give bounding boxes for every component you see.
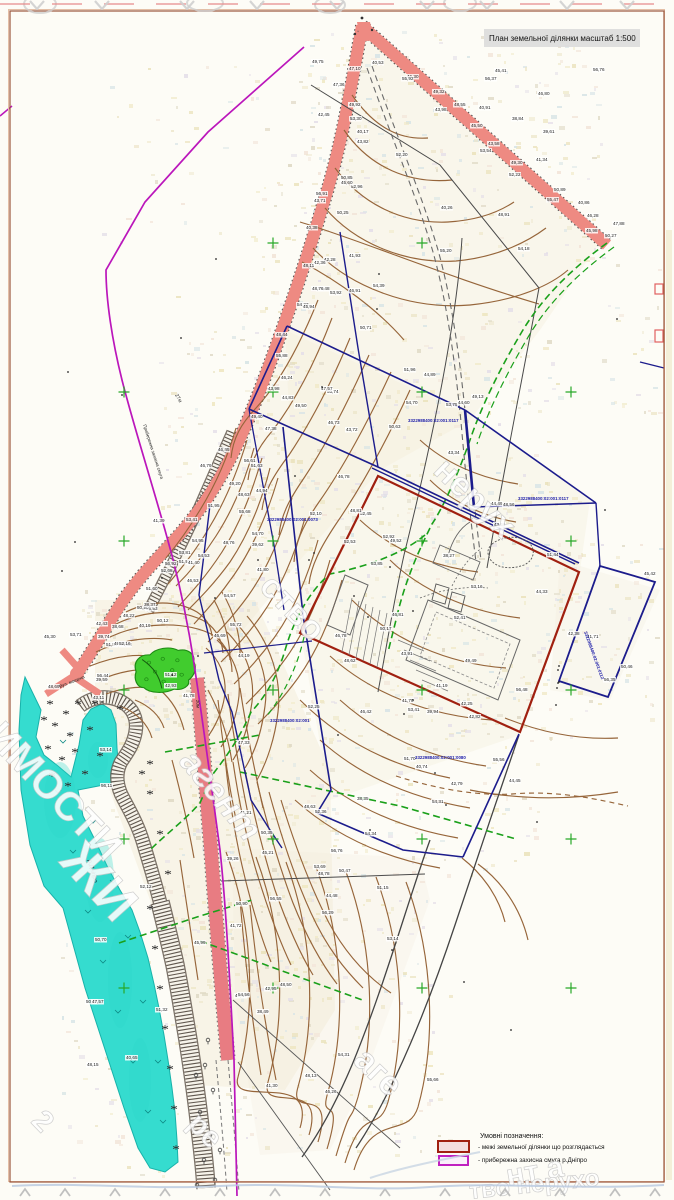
svg-text:48,22: 48,22 xyxy=(123,613,135,618)
svg-text:52,16: 52,16 xyxy=(119,641,131,646)
svg-text:50,47: 50,47 xyxy=(339,868,351,873)
svg-text:51,96: 51,96 xyxy=(404,367,416,372)
svg-text:46,28: 46,28 xyxy=(587,213,599,218)
svg-text:48,50: 48,50 xyxy=(280,982,292,987)
svg-text:51,44: 51,44 xyxy=(547,552,559,557)
svg-text:42,95: 42,95 xyxy=(265,986,277,991)
svg-text:41,78: 41,78 xyxy=(183,693,195,698)
svg-text:51,12: 51,12 xyxy=(165,672,177,677)
svg-text:50,85: 50,85 xyxy=(341,175,353,180)
svg-text:53,41: 53,41 xyxy=(186,517,198,522)
svg-text:48,15: 48,15 xyxy=(87,1062,99,1067)
svg-text:50,90: 50,90 xyxy=(236,901,248,906)
svg-text:54,39: 54,39 xyxy=(373,283,385,288)
svg-text:40,86: 40,86 xyxy=(578,200,590,205)
svg-text:43,98: 43,98 xyxy=(268,386,280,391)
svg-text:40,38: 40,38 xyxy=(306,225,318,230)
svg-text:48,63: 48,63 xyxy=(304,804,316,809)
svg-text:52,36: 52,36 xyxy=(315,809,327,814)
svg-text:План земельної ділянки масштаб: План земельної ділянки масштаб 1:500 xyxy=(489,34,636,43)
svg-text:42,36: 42,36 xyxy=(314,260,326,265)
svg-text:49,30: 49,30 xyxy=(511,160,523,165)
svg-text:44,89: 44,89 xyxy=(424,372,436,377)
svg-text:47,38: 47,38 xyxy=(265,426,277,431)
svg-text:53,14: 53,14 xyxy=(387,936,399,941)
svg-text:43,11: 43,11 xyxy=(93,695,105,700)
svg-text:20м: 20м xyxy=(195,700,201,709)
svg-text:42,43: 42,43 xyxy=(96,621,108,626)
svg-text:51,32: 51,32 xyxy=(156,1007,168,1012)
svg-text:53,71: 53,71 xyxy=(70,632,82,637)
svg-text:56,76: 56,76 xyxy=(593,67,605,72)
svg-text:45,42: 45,42 xyxy=(644,571,656,576)
svg-text:43,71: 43,71 xyxy=(314,198,326,203)
svg-text:43,91: 43,91 xyxy=(401,651,413,656)
svg-text:54,31: 54,31 xyxy=(432,799,444,804)
svg-text:46,42: 46,42 xyxy=(360,709,372,714)
svg-text:39,94: 39,94 xyxy=(427,709,439,714)
svg-text:49,13: 49,13 xyxy=(472,394,484,399)
svg-text:3322988400:02:001:0117: 3322988400:02:001:0117 xyxy=(408,418,459,423)
svg-text:41,34: 41,34 xyxy=(536,157,548,162)
svg-text:53,30: 53,30 xyxy=(350,116,362,121)
svg-text:52,53: 52,53 xyxy=(344,539,356,544)
svg-text:47,10: 47,10 xyxy=(349,66,361,71)
svg-text:47,33: 47,33 xyxy=(238,740,250,745)
svg-text:53,14: 53,14 xyxy=(100,747,112,752)
svg-text:48,76: 48,76 xyxy=(223,540,235,545)
svg-text:53,75: 53,75 xyxy=(446,402,458,407)
svg-text:46,79: 46,79 xyxy=(200,463,212,468)
svg-text:46,91: 46,91 xyxy=(349,288,361,293)
svg-text:42,25: 42,25 xyxy=(461,701,473,706)
svg-text:49,20: 49,20 xyxy=(229,481,241,486)
svg-text:38,68: 38,68 xyxy=(112,624,124,629)
svg-text:40,26: 40,26 xyxy=(441,205,453,210)
svg-text:38,37: 38,37 xyxy=(144,602,156,607)
svg-text:41,19: 41,19 xyxy=(436,683,448,688)
svg-text:42,38: 42,38 xyxy=(568,631,580,636)
svg-text:44,19: 44,19 xyxy=(238,653,250,658)
svg-text:45,99: 45,99 xyxy=(194,940,206,945)
svg-text:55,47: 55,47 xyxy=(547,197,559,202)
svg-text:54,18: 54,18 xyxy=(518,246,530,251)
svg-text:47,36: 47,36 xyxy=(333,82,345,87)
svg-text:38,49: 38,49 xyxy=(257,1009,269,1014)
svg-text:50,17: 50,17 xyxy=(380,626,392,631)
svg-text:48,44: 48,44 xyxy=(276,332,288,337)
svg-text:40,19: 40,19 xyxy=(139,623,151,628)
svg-text:38,35: 38,35 xyxy=(357,796,369,801)
svg-text:55,72: 55,72 xyxy=(230,622,242,627)
svg-text:39,26: 39,26 xyxy=(227,856,239,861)
svg-text:46,26: 46,26 xyxy=(325,1089,337,1094)
svg-text:43,82: 43,82 xyxy=(357,139,369,144)
svg-text:3322988400:02:001:0080: 3322988400:02:001:0080 xyxy=(415,755,466,760)
svg-text:44,48: 44,48 xyxy=(326,893,338,898)
svg-text:53,85: 53,85 xyxy=(371,561,383,566)
svg-text:56,11: 56,11 xyxy=(101,783,113,788)
svg-text:51,63: 51,63 xyxy=(251,463,263,468)
svg-text:54,70: 54,70 xyxy=(406,400,418,405)
svg-text:46,24: 46,24 xyxy=(281,375,293,380)
svg-text:Умовні позначення:: Умовні позначення: xyxy=(480,1132,543,1140)
svg-text:45,50: 45,50 xyxy=(471,123,483,128)
svg-text:45,98: 45,98 xyxy=(586,228,598,233)
svg-text:- межі земельної ділянки що ро: - межі земельної ділянки що розглядаєтьс… xyxy=(478,1143,605,1151)
svg-text:52,10: 52,10 xyxy=(310,511,322,516)
svg-text:55,68: 55,68 xyxy=(239,509,251,514)
svg-text:54,34: 54,34 xyxy=(365,831,377,836)
svg-text:41,40: 41,40 xyxy=(188,560,200,565)
svg-text:49,49: 49,49 xyxy=(465,658,477,663)
svg-text:39,59: 39,59 xyxy=(96,677,108,682)
svg-text:56,37: 56,37 xyxy=(485,76,497,81)
svg-text:44,83: 44,83 xyxy=(282,395,294,400)
svg-text:41,39: 41,39 xyxy=(153,518,165,523)
svg-text:56,92: 56,92 xyxy=(165,561,177,566)
svg-text:44,45: 44,45 xyxy=(509,778,521,783)
svg-text:48,78: 48,78 xyxy=(318,871,330,876)
svg-text:53,41: 53,41 xyxy=(408,707,420,712)
svg-text:53,16: 53,16 xyxy=(471,584,483,589)
svg-text:40,17: 40,17 xyxy=(357,129,369,134)
svg-text:46,81: 46,81 xyxy=(392,612,404,617)
svg-text:48,11: 48,11 xyxy=(303,263,315,268)
svg-text:40,74: 40,74 xyxy=(416,764,428,769)
svg-text:50,63: 50,63 xyxy=(389,424,401,429)
svg-text:48,55: 48,55 xyxy=(454,102,466,107)
svg-text:46,73: 46,73 xyxy=(328,420,340,425)
svg-text:55,20: 55,20 xyxy=(440,248,452,253)
svg-text:55,88: 55,88 xyxy=(276,353,288,358)
svg-text:54,95: 54,95 xyxy=(192,538,204,543)
svg-text:46,78: 46,78 xyxy=(338,474,350,479)
svg-text:40,53: 40,53 xyxy=(372,60,384,65)
svg-text:43,58: 43,58 xyxy=(488,141,500,146)
svg-text:42,79: 42,79 xyxy=(451,781,463,786)
svg-text:49,92: 49,92 xyxy=(349,102,361,107)
svg-text:48,91: 48,91 xyxy=(498,212,510,217)
svg-text:48,63: 48,63 xyxy=(238,492,250,497)
svg-text:55,92: 55,92 xyxy=(402,76,414,81)
svg-text:50,35: 50,35 xyxy=(261,830,273,835)
svg-text:45,94: 45,94 xyxy=(303,304,315,309)
svg-text:47,88: 47,88 xyxy=(613,221,625,226)
svg-text:56,55: 56,55 xyxy=(270,896,282,901)
svg-text:38,27: 38,27 xyxy=(443,553,455,558)
svg-text:47,57: 47,57 xyxy=(92,999,104,1004)
svg-text:39,62: 39,62 xyxy=(252,542,264,547)
svg-text:41,80: 41,80 xyxy=(257,567,269,572)
svg-text:49,32: 49,32 xyxy=(433,89,445,94)
svg-text:43,98: 43,98 xyxy=(435,107,447,112)
svg-text:51,95: 51,95 xyxy=(208,503,220,508)
svg-text:41,70: 41,70 xyxy=(402,698,414,703)
svg-text:50,12: 50,12 xyxy=(157,618,169,623)
svg-text:42,45: 42,45 xyxy=(318,112,330,117)
svg-text:43,72: 43,72 xyxy=(346,427,358,432)
svg-text:52,20: 52,20 xyxy=(396,152,408,157)
svg-text:53,81: 53,81 xyxy=(179,550,191,555)
svg-text:56,91: 56,91 xyxy=(316,191,328,196)
svg-text:55,66: 55,66 xyxy=(427,1077,439,1082)
svg-text:42,93: 42,93 xyxy=(165,683,177,688)
svg-text:3322988400:02:001:0073: 3322988400:02:001:0073 xyxy=(267,517,318,522)
svg-text:54,53: 54,53 xyxy=(198,553,210,558)
svg-text:38,84: 38,84 xyxy=(512,116,524,121)
svg-text:46,45: 46,45 xyxy=(218,447,230,452)
svg-text:52,68: 52,68 xyxy=(161,568,173,573)
svg-text:49,52: 49,52 xyxy=(390,538,402,543)
svg-text:53,69: 53,69 xyxy=(314,864,326,869)
svg-text:56,76: 56,76 xyxy=(331,848,343,853)
svg-text:55,56: 55,56 xyxy=(493,757,505,762)
svg-text:41,72: 41,72 xyxy=(230,923,242,928)
svg-text:52,22: 52,22 xyxy=(509,172,521,177)
svg-text:46,53: 46,53 xyxy=(187,578,199,583)
svg-text:52,25: 52,25 xyxy=(308,704,320,709)
svg-text:53,54: 53,54 xyxy=(480,148,492,153)
svg-text:49,75: 49,75 xyxy=(312,59,324,64)
svg-text:48,76: 48,76 xyxy=(312,286,324,291)
svg-text:3322988400:02:001: 3322988400:02:001 xyxy=(270,718,310,723)
svg-text:54,31: 54,31 xyxy=(338,1052,350,1057)
svg-text:45,60: 45,60 xyxy=(341,180,353,185)
svg-text:46,69: 46,69 xyxy=(214,633,226,638)
svg-text:44,94: 44,94 xyxy=(256,488,268,493)
svg-text:39,61: 39,61 xyxy=(543,129,555,134)
svg-text:51,60: 51,60 xyxy=(146,586,158,591)
svg-text:49,50: 49,50 xyxy=(295,403,307,408)
svg-text:46,78: 46,78 xyxy=(335,633,347,638)
svg-text:50,89: 50,89 xyxy=(554,187,566,192)
svg-text:48,81: 48,81 xyxy=(350,508,362,513)
svg-text:50,25: 50,25 xyxy=(337,210,349,215)
svg-text:51,15: 51,15 xyxy=(377,885,389,890)
svg-text:44,60: 44,60 xyxy=(458,400,470,405)
svg-text:3322988400:02:001:0117: 3322988400:02:001:0117 xyxy=(518,496,569,501)
svg-text:50,70: 50,70 xyxy=(95,937,107,942)
svg-text:50,27: 50,27 xyxy=(605,233,617,238)
svg-text:48,13: 48,13 xyxy=(305,1073,317,1078)
svg-text:42,82: 42,82 xyxy=(469,714,481,719)
svg-text:56,29: 56,29 xyxy=(322,910,334,915)
svg-text:40,91: 40,91 xyxy=(479,105,491,110)
svg-text:52,41: 52,41 xyxy=(454,615,466,620)
svg-text:45,21: 45,21 xyxy=(262,850,274,855)
svg-text:54,57: 54,57 xyxy=(224,593,236,598)
svg-text:50,71: 50,71 xyxy=(360,325,372,330)
svg-text:41,30: 41,30 xyxy=(266,1083,278,1088)
svg-text:56,48: 56,48 xyxy=(516,687,528,692)
svg-text:46,80: 46,80 xyxy=(538,91,550,96)
svg-text:40,65: 40,65 xyxy=(126,1055,138,1060)
svg-text:39,74: 39,74 xyxy=(98,634,110,639)
svg-text:48,62: 48,62 xyxy=(344,658,356,663)
svg-text:44,33: 44,33 xyxy=(536,589,548,594)
svg-text:54,70: 54,70 xyxy=(252,531,264,536)
svg-text:53,92: 53,92 xyxy=(330,290,342,295)
svg-text:49,40: 49,40 xyxy=(251,414,263,419)
svg-text:45,30: 45,30 xyxy=(44,634,56,639)
svg-text:41,93: 41,93 xyxy=(349,253,361,258)
svg-text:45,41: 45,41 xyxy=(495,68,507,73)
svg-text:50,46: 50,46 xyxy=(621,664,633,669)
svg-text:54,56: 54,56 xyxy=(238,992,250,997)
